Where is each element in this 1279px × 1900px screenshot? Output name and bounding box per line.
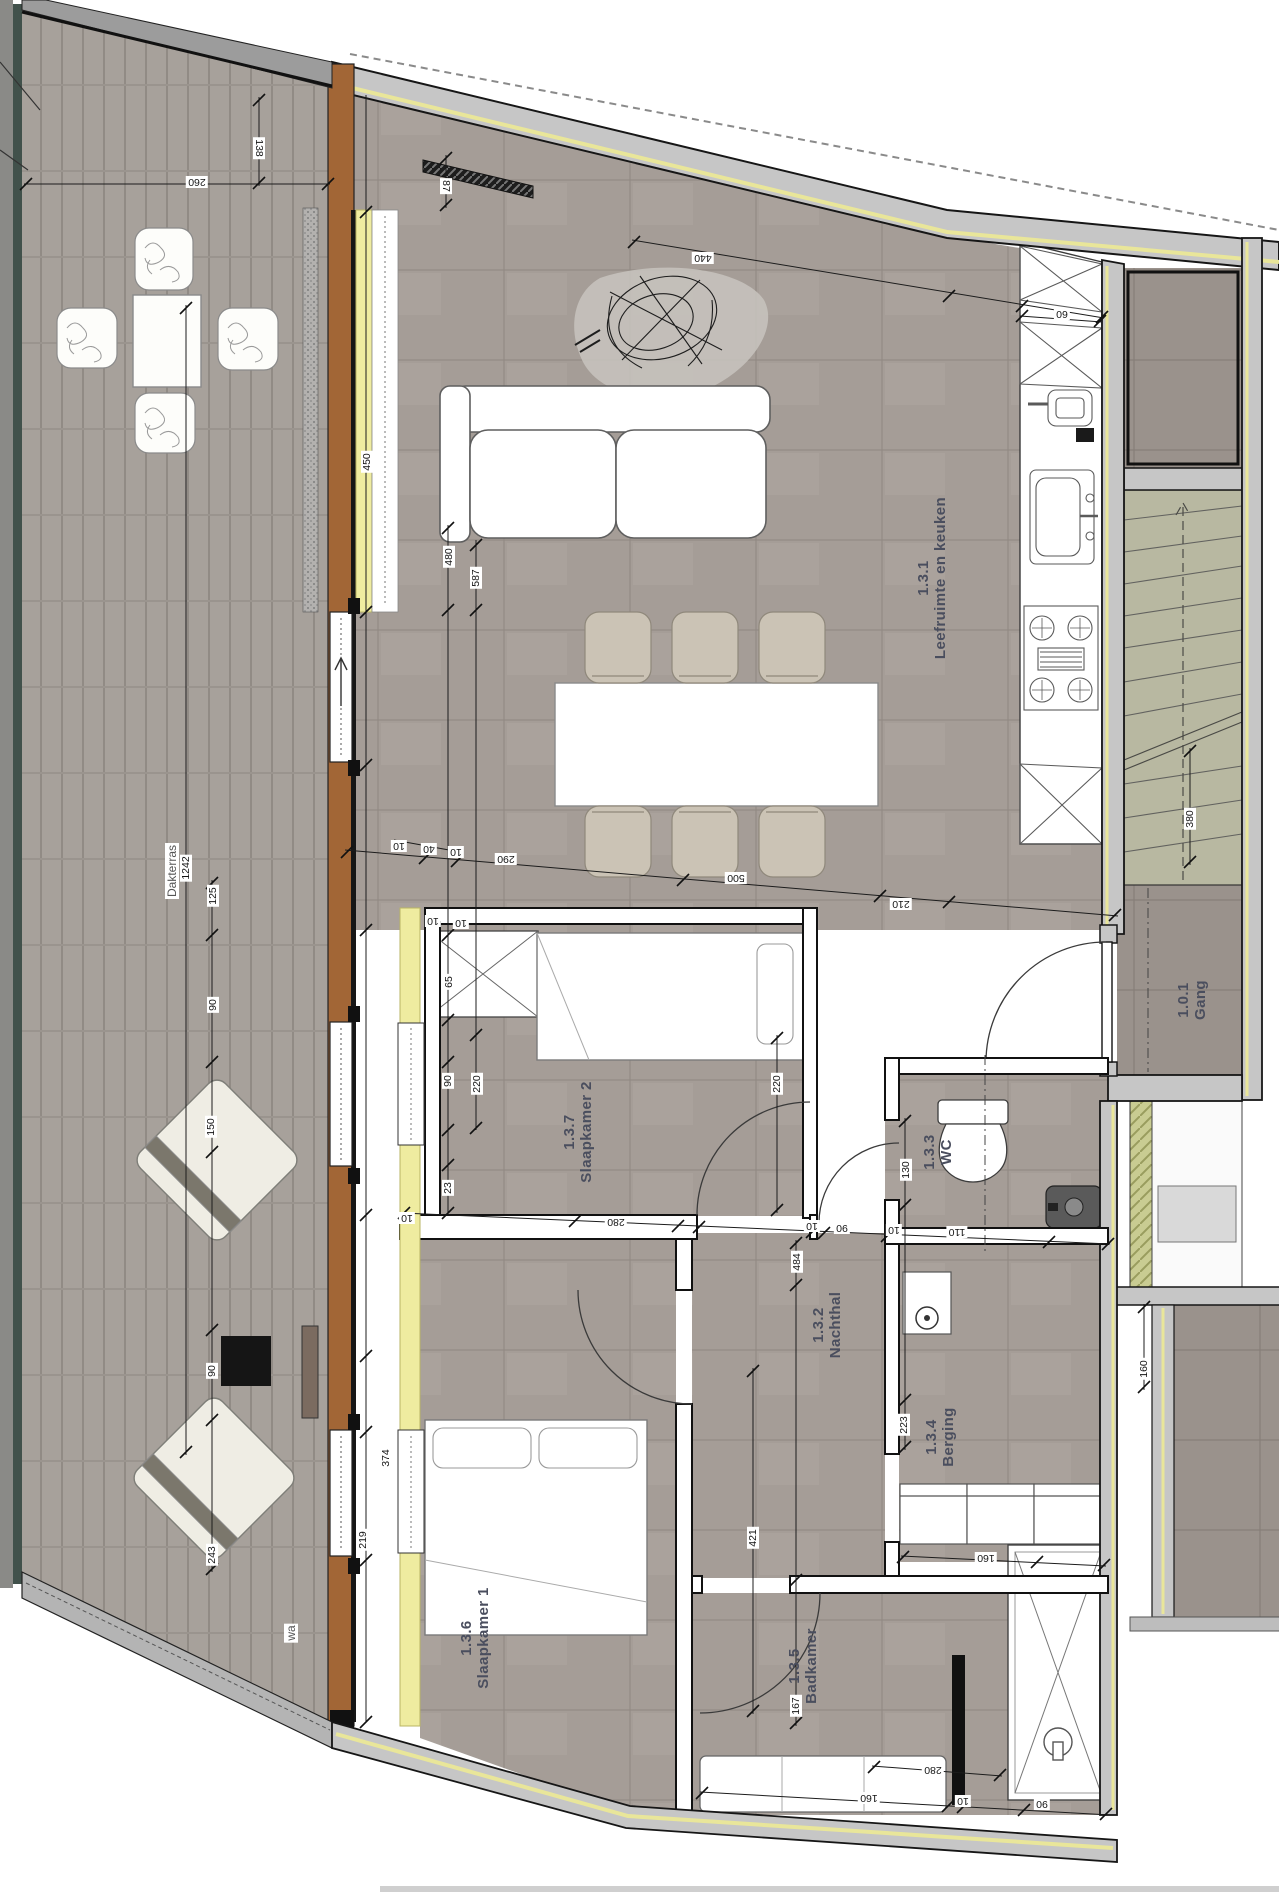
gang-floor — [1117, 885, 1243, 1077]
pillow — [757, 944, 793, 1044]
sliding-panel — [302, 1326, 318, 1418]
floor-plan-page: 1.3.1Leefruimte en keuken1.3.7Slaapkamer… — [0, 0, 1279, 1900]
entry-door-arc — [986, 942, 1106, 1062]
page-edge-line — [380, 1886, 1279, 1892]
sofa — [440, 386, 770, 542]
adjacent-room-floor — [1124, 268, 1242, 468]
lattice-chair — [57, 308, 117, 368]
toilet-icon — [938, 1100, 1008, 1182]
terrace-table — [133, 295, 201, 387]
right-wing-wall — [1108, 1287, 1279, 1305]
gang-bottom-wall — [1108, 1075, 1242, 1101]
lattice-chair — [218, 308, 278, 370]
partition-stub — [952, 1655, 965, 1805]
stair-landing-wall — [1124, 468, 1242, 490]
outer-screen-strip — [303, 208, 318, 612]
dining-table — [555, 683, 878, 806]
neighbor-bottom-edge — [1130, 1617, 1279, 1631]
lattice-chair — [135, 228, 193, 290]
washbasin-icon — [1046, 1186, 1102, 1228]
pillow — [433, 1428, 531, 1468]
nachthal-floor — [692, 1233, 885, 1578]
fire-table — [221, 1336, 271, 1386]
lift-zone — [1130, 1101, 1242, 1287]
bedroom1-furniture — [425, 1420, 647, 1635]
staircase — [1124, 490, 1242, 885]
pillow — [539, 1428, 637, 1468]
stair-right-wall — [1242, 238, 1262, 1100]
floor-plan-svg — [0, 0, 1279, 1900]
entry-door-leaf — [1102, 942, 1112, 1062]
kitchen-right-wall — [1102, 260, 1124, 934]
boiler-icon — [903, 1272, 951, 1334]
washer-dryer — [900, 1484, 1104, 1544]
kitchen — [1020, 242, 1102, 844]
